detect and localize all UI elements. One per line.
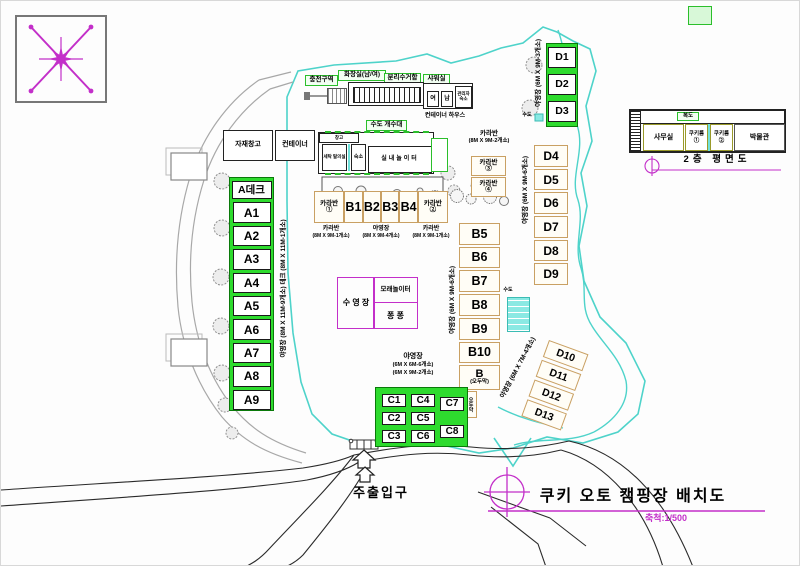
caravan34-legend-size: (8M X 9M-2개소) [469,138,510,144]
charging-structure [327,88,347,104]
site-d5-text: D5 [543,174,558,186]
site-a1: A1 [233,202,271,222]
indoor-playroom: 실내놀이터 [368,146,432,173]
site-a7: A7 [233,343,271,363]
sand-playground-text: 모래놀이터 [381,286,411,293]
main-building-divider [348,144,350,171]
floor2-corridor-text: 복도 [683,114,693,120]
site-d3: D3 [548,101,576,122]
a-zone: A데크 A1 A2 A3 A4 A5 A6 A7 A8 A9 [229,177,274,411]
toilet-stalls [353,87,421,103]
site-b9: B9 [459,318,500,340]
site-d2: D2 [548,74,576,95]
shower-room-female: 여 [427,91,439,107]
site-b5: B5 [459,223,500,245]
site-b2-text: B2 [364,201,380,214]
charging-area-text: 충전구역 [310,77,334,84]
caravan-site-4: 카라반④ [471,177,506,197]
laundry-room: 세탁 탈의실 [322,144,347,171]
site-a3: A3 [233,249,271,269]
entrance-text: 주출입구 [353,485,409,500]
shower-room-male-text: 남 [444,96,450,103]
toilet-building [348,82,424,106]
site-a2: A2 [233,226,271,246]
main-building: 창고 세탁 탈의실 숙소 실내놀이터 [318,132,434,174]
container-house-text: 컨테이너 하우스 [425,113,465,119]
caravan-site-3: 카라반③ [471,156,506,176]
site-c8-text: C8 [446,427,459,437]
caravan-site-2-text: 카라반② [423,201,443,214]
d123-legend-text: 야영장 (6M X 9M-3개소) [535,39,542,107]
caravan-legend-2-size: (8M X 9M-1개소) [413,233,450,239]
site-c4: C4 [411,394,435,407]
water-point-top-label: 수도 [519,113,535,119]
site-a5: A5 [233,296,271,316]
site-c7: C7 [440,397,464,411]
site-a9: A9 [233,390,271,410]
c-zone-legend: 야영장 (6M X 6M-6개소) (6M X 9M-2개소) [369,353,457,377]
site-a8-text: A8 [244,370,259,382]
indoor-playroom-text: 실내놀이터 [381,156,419,163]
site-b4-text: B4 [401,201,417,214]
floor2-stairs [631,111,641,151]
entrance-label: 주출입구 [343,486,419,501]
site-a7-text: A7 [244,347,259,359]
b-zone-legend: 야영장 (6M X 9M-6개소) [449,250,457,350]
site-a4: A4 [233,273,271,293]
site-c3: C3 [382,430,406,443]
site-d1-text: D1 [555,52,568,63]
site-c1-text: C1 [388,396,401,406]
floor2-cookie-room-2-text: 쿠키룸② [713,131,731,143]
site-d8: D8 [534,240,568,262]
caravan-row: 카라반① B1 B2 B3 B4 카라반② [314,191,448,221]
compass-frame [15,15,107,103]
floor2-cookie-room-1-text: 쿠키룸① [688,131,706,143]
site-b7-text: B7 [472,275,488,288]
site-d12-text: D12 [540,387,562,403]
shower-room-female-text: 여 [430,96,436,103]
d123-legend: 야영장 (6M X 9M-3개소) [535,28,543,118]
site-a4-text: A4 [244,277,259,289]
water-point-top-text: 수도 [522,112,531,118]
camp-legend-mid-size: (8M X 9M-4개소) [363,233,400,239]
d49-legend-text: 야영장 (6M X 9M-6개소) [522,156,529,224]
site-d2-text: D2 [555,79,568,90]
site-b3: B3 [381,191,399,223]
lodging-room-text: 숙소 [354,155,363,161]
campground-map: 충전구역 화장실(남/여) 분리수거함 샤워실 수도 개수대 컨테이너 하우스 … [0,0,800,566]
site-d5: D5 [534,169,568,191]
site-c2: C2 [382,412,406,425]
site-c5-text: C5 [417,414,430,424]
site-d4: D4 [534,145,568,167]
lodging-room: 숙소 [351,144,366,171]
floor2-cookie-room-2: 쿠키룸② [710,124,733,151]
sink-text: 수도 개수대 [371,122,403,129]
a-zone-header: A데크 [232,181,272,199]
c-zone-legend-name: 야영장 [403,353,422,360]
water-point-mid-label: 수도 [500,288,516,294]
floor2-caption-text: 2층 평면도 [684,154,751,165]
site-c6-text: C6 [417,432,430,442]
shower-building: 여 남 관리자 숙소 [423,83,473,109]
site-b1: B1 [344,191,362,223]
water-point-mid-text: 수도 [503,287,512,293]
caravan34-legend-name: 카라반 [480,130,498,137]
a-zone-camp-legend-text: 야영장 (8M X 11M-9개소) [280,286,287,357]
storage-room: 창고 [319,133,359,143]
site-b8-text: B8 [472,299,488,312]
page-title: 쿠키 오토 캠핑장 배치도 [513,488,753,506]
site-b5-text: B5 [472,228,488,241]
d123-zone: D1 D2 D3 [546,43,578,127]
caravan34-legend: 카라반 (8M X 9M-2개소) [453,130,525,145]
site-a1-text: A1 [244,207,259,219]
site-d6-text: D6 [543,197,558,209]
site-b6-text: B6 [472,251,488,264]
floor2-museum-text: 박물관 [750,134,769,142]
material-storage-building: 자재창고 [223,130,273,161]
site-d6: D6 [534,192,568,214]
toilet-text: 화장실(남/여) [344,72,380,79]
site-d9: D9 [534,263,568,285]
b-zone-legend-text: 야영장 (6M X 9M-6개소) [449,266,456,334]
site-d7: D7 [534,216,568,238]
container-house-box [431,138,448,172]
caravan-legend-1-name: 카라반 [323,226,340,232]
site-d11-text: D11 [548,367,569,383]
floor2-office: 사무실 [643,124,684,151]
floor2-caption: 2층 평면도 [661,155,773,166]
site-b-hut-sub: (오두막) [470,380,489,386]
b-zone: B5 B6 B7 B8 B9 B10 B (오두막) [459,223,500,390]
scale-label: 축척:1/500 [631,513,701,523]
site-b6: B6 [459,247,500,269]
a-zone-header-text: A데크 [238,185,265,196]
caravan-legend-2: 카라반 (8M X 9M-1개소) [400,226,462,240]
site-a3-text: A3 [244,253,259,265]
floor2-office-text: 사무실 [654,134,673,142]
charging-post [304,92,310,100]
site-b7: B7 [459,270,500,292]
site-b3-text: B3 [382,201,398,214]
c-zone-legend-size2: (6M X 9M-2개소) [393,370,434,376]
a-zone-camp-legend: 야영장 (8M X 11M-9개소) [280,272,288,372]
site-d4-text: D4 [543,150,558,162]
site-c3-text: C3 [388,432,401,442]
site-b10-text: B10 [468,346,491,359]
site-a2-text: A2 [244,230,259,242]
site-b4: B4 [399,191,417,223]
floor2-museum: 박물관 [734,124,785,151]
toilet-label: 화장실(남/여) [338,70,386,81]
caravan-site-4-text: 카라반④ [479,181,499,194]
site-d10-text: D10 [555,347,577,363]
c-zone: C1 C4 C7 C2 C5 C3 C6 C8 [375,387,468,447]
swimming-pool-text: 수 영 장 [343,298,370,307]
site-c8: C8 [440,425,464,438]
site-b8: B8 [459,294,500,316]
caravan-legend-2-name: 카라반 [423,226,440,232]
site-b2: B2 [363,191,381,223]
bounce-pad-text: 퐁 퐁 [387,311,404,320]
laundry-room-text: 세탁 탈의실 [324,155,346,160]
site-a6: A6 [233,319,271,339]
page-title-text: 쿠키 오토 캠핑장 배치도 [540,488,727,505]
floor2-cookie-room-1: 쿠키룸① [685,124,708,151]
d49-zone: D4 D5 D6 D7 D8 D9 [534,145,568,285]
container-building: 컨테이너 [275,130,315,161]
caravan-site-2: 카라반② [418,191,448,223]
shower-room-male: 남 [441,91,453,107]
recycling-text: 분리수거함 [388,75,418,82]
site-c4-text: C4 [417,396,430,406]
floor2-corridor-label: 복도 [677,112,699,121]
site-d9-text: D9 [543,268,558,280]
site-b1-text: B1 [345,201,361,214]
floor2-building: 복도 사무실 쿠키룸① 쿠키룸② 박물관 [629,109,786,153]
sand-playground: 모래놀이터 퐁 퐁 [373,277,418,329]
caravan-site-1-text: 카라반① [319,201,339,214]
site-b10: B10 [459,342,500,364]
site-a5-text: A5 [244,300,259,312]
site-a9-text: A9 [244,394,259,406]
container-building-text: 컨테이너 [282,141,308,149]
site-a8: A8 [233,366,271,386]
site-d1: D1 [548,47,576,68]
caravan-site-3-text: 카라반③ [479,160,499,173]
storage-room-text: 창고 [335,136,343,141]
c-zone-legend-size1: (6M X 6M-6개소) [393,362,434,368]
material-storage-text: 자재창고 [235,141,261,149]
caravan-site-1: 카라반① [314,191,344,223]
scale-text: 축척:1/500 [645,513,687,523]
site-b9-text: B9 [472,323,488,336]
site-d3-text: D3 [555,106,568,117]
site-c5: C5 [411,412,435,425]
d49-legend: 야영장 (6M X 9M-6개소) [522,145,530,235]
site-d7-text: D7 [543,221,558,233]
site-d13-text: D13 [533,407,555,423]
water-area [507,297,530,332]
charging-area-label: 충전구역 [305,75,338,86]
shelter-icons [166,148,207,366]
container-house-label: 컨테이너 하우스 [420,113,470,120]
site-c1: C1 [382,394,406,407]
site-a6-text: A6 [244,324,259,336]
small-green-box [688,6,712,25]
small-hut-text: 오두막 [468,397,473,412]
main-building-door-marks-bottom [325,173,429,175]
site-c7-text: C7 [446,399,459,409]
shower-text: 샤워실 [428,76,446,83]
manager-room: 관리자 숙소 [455,86,472,108]
camp-legend-mid-name: 야영장 [373,226,390,232]
caravan-legend-1-size: (8M X 9M-1개소) [313,233,350,239]
site-d8-text: D8 [543,245,558,257]
site-c2-text: C2 [388,414,401,424]
sink-label: 수도 개수대 [366,120,407,131]
manager-room-text: 관리자 숙소 [456,92,471,102]
swimming-pool: 수 영 장 [337,277,375,329]
site-c6: C6 [411,430,435,443]
